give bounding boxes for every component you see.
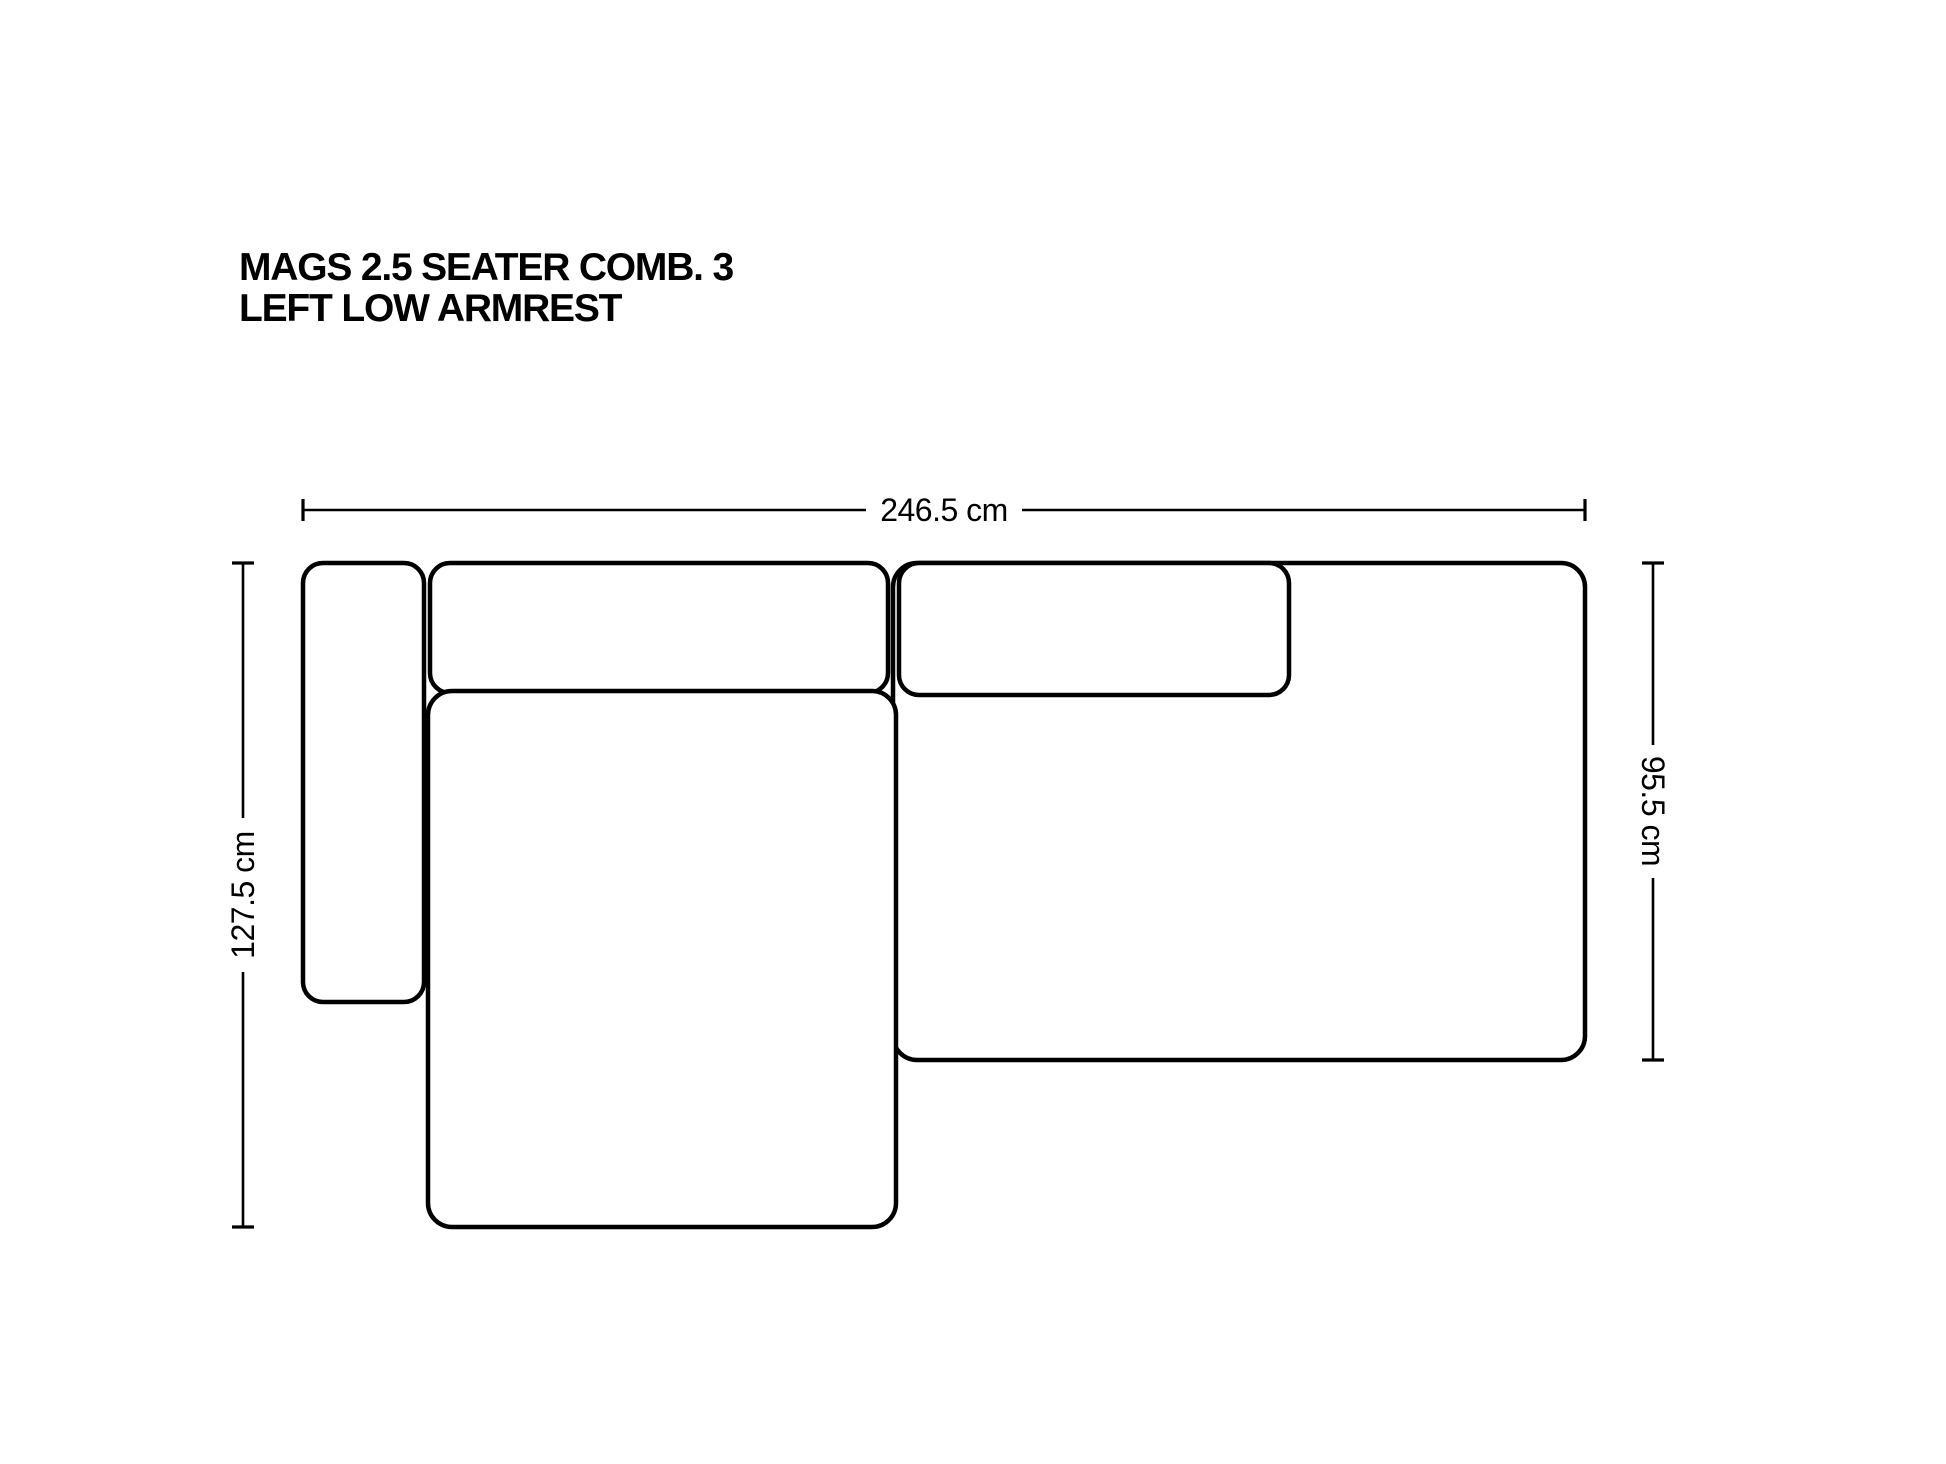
dimension-left-depth: 127.5 cm (225, 563, 261, 1227)
left-back-cushion (430, 563, 888, 693)
left-depth-label: 127.5 cm (225, 831, 261, 959)
dimension-right-depth: 95.5 cm (1635, 563, 1671, 1060)
left-seat-chaise-module (428, 691, 896, 1227)
left-low-armrest (303, 563, 424, 1002)
overall-width-label: 246.5 cm (880, 492, 1008, 528)
sofa-dimension-diagram: 246.5 cm 127.5 cm 95.5 cm (0, 0, 1946, 1464)
right-back-cushion (899, 563, 1289, 695)
sofa-top-view (303, 563, 1585, 1227)
right-depth-label: 95.5 cm (1635, 756, 1671, 866)
dimension-overall-width: 246.5 cm (303, 492, 1585, 528)
diagram-page: MAGS 2.5 SEATER COMB. 3 LEFT LOW ARMREST… (0, 0, 1946, 1464)
